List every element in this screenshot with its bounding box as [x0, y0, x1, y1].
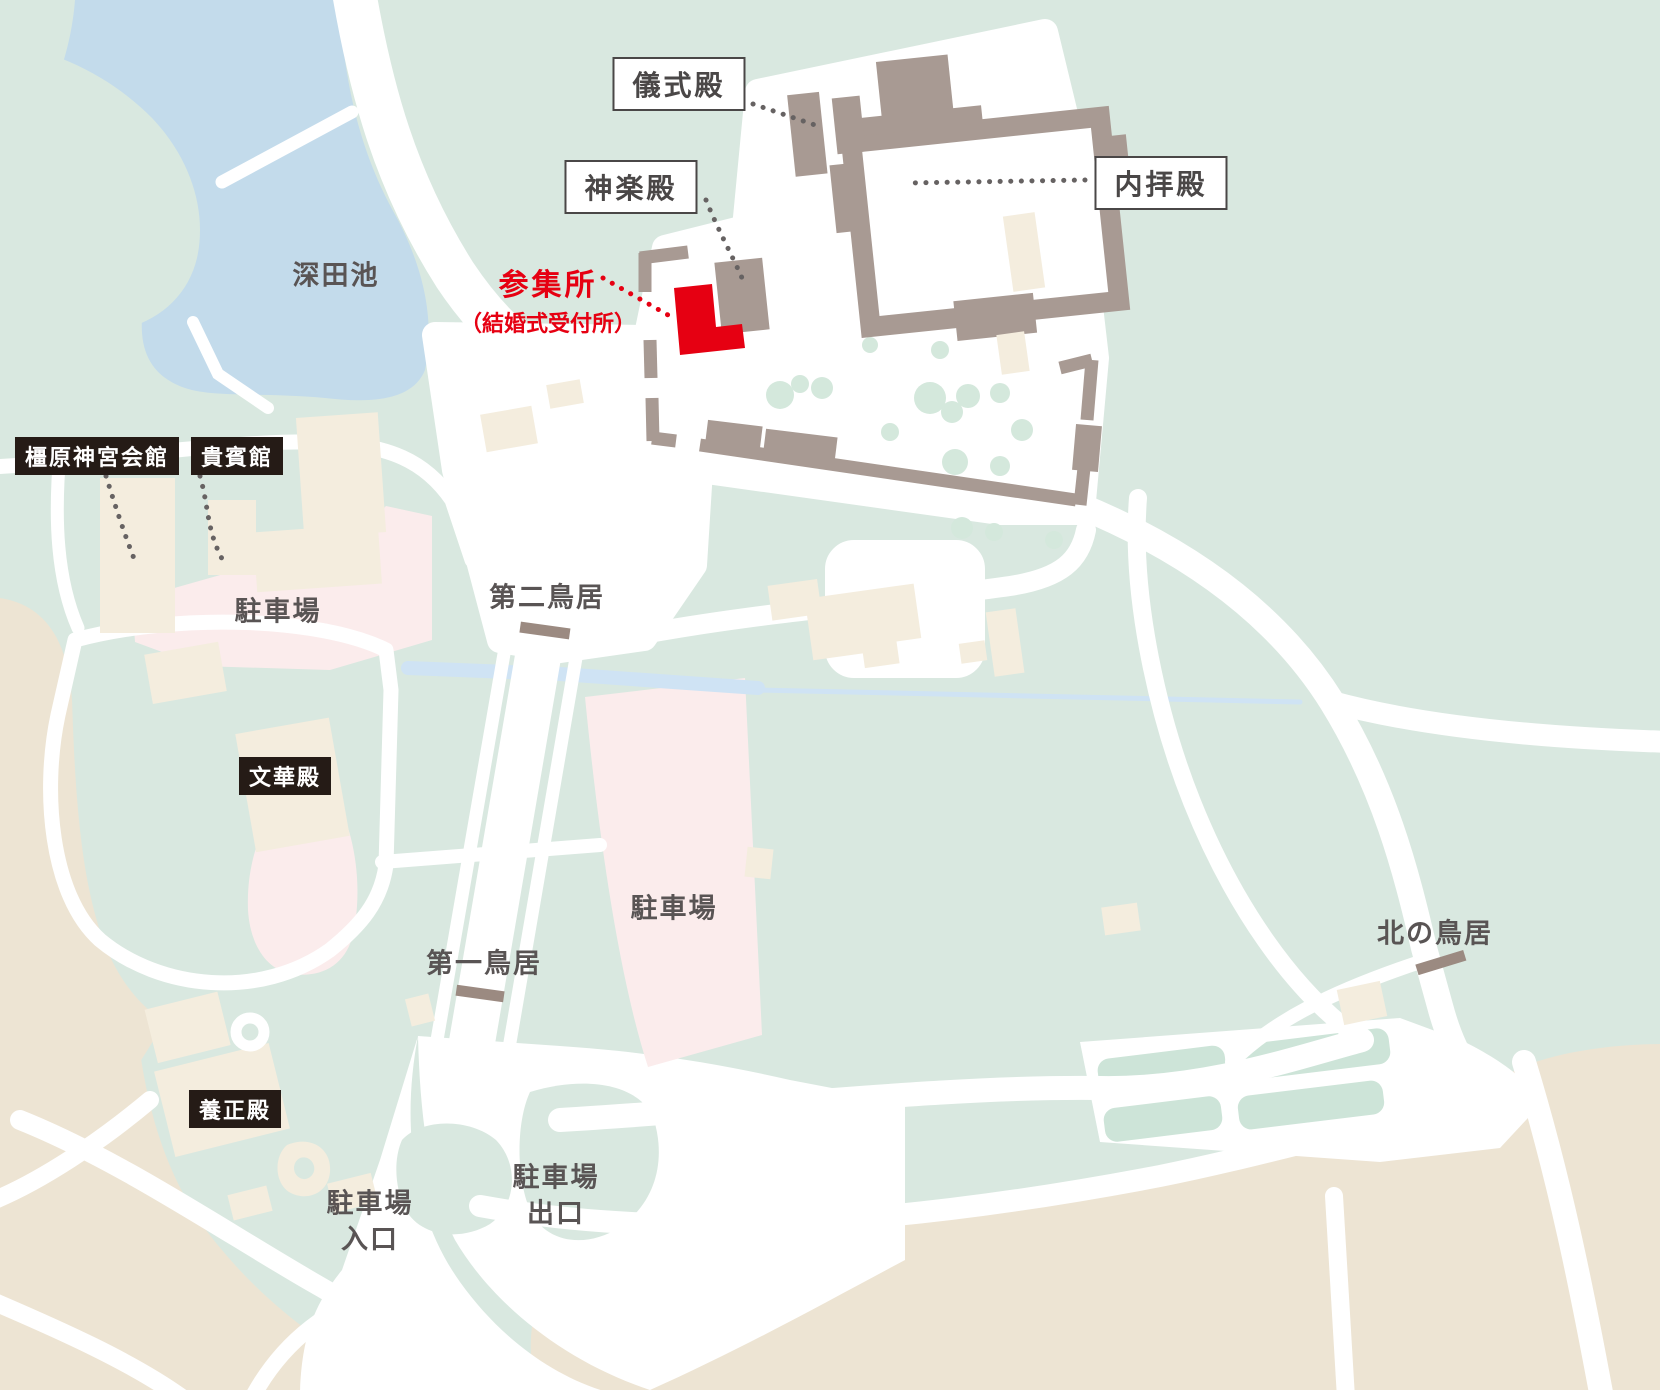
badge-yoseiden: 養正殿	[189, 1090, 281, 1128]
shrine-grounds-map: 儀式殿 神楽殿 内拝殿 参集所 （結婚式受付所） 深田池 橿原神宮会館 貴賓館 …	[0, 0, 1660, 1390]
compound-beige-2	[996, 331, 1029, 375]
label-parking-exit: 駐車場 出口	[513, 1160, 600, 1231]
label-parking-sando: 駐車場	[631, 887, 718, 926]
sanshujo-sublabel: （結婚式受付所）	[460, 306, 636, 338]
badge-kashihara-kaikan: 橿原神宮会館	[15, 437, 179, 475]
label-second-torii: 第二鳥居	[489, 576, 605, 615]
parking-entrance-line2: 入口	[327, 1222, 414, 1258]
parking-entrance-line1: 駐車場	[327, 1186, 414, 1222]
label-fukada-pond: 深田池	[293, 254, 380, 293]
label-north-torii: 北の鳥居	[1377, 912, 1493, 951]
callout-kaguraden: 神楽殿	[564, 160, 697, 214]
callout-naihaiden: 内拝殿	[1094, 156, 1227, 210]
sanshujo-label: 参集所	[460, 260, 636, 304]
callout-gishikiden: 儀式殿	[612, 57, 745, 111]
label-parking-west: 駐車場	[235, 590, 322, 629]
parking-exit-line1: 駐車場	[513, 1160, 600, 1196]
label-first-torii: 第一鳥居	[426, 942, 542, 981]
east-gate	[1072, 424, 1102, 472]
kaguraden-hall	[714, 258, 769, 335]
parking-exit-line2: 出口	[513, 1196, 600, 1232]
callout-sanshujo: 参集所 （結婚式受付所）	[460, 260, 636, 338]
label-parking-entrance: 駐車場 入口	[327, 1186, 414, 1257]
badge-bunkaden: 文華殿	[239, 757, 331, 795]
badge-kihinkan: 貴賓館	[191, 437, 283, 475]
map-base-svg	[0, 0, 1660, 1390]
